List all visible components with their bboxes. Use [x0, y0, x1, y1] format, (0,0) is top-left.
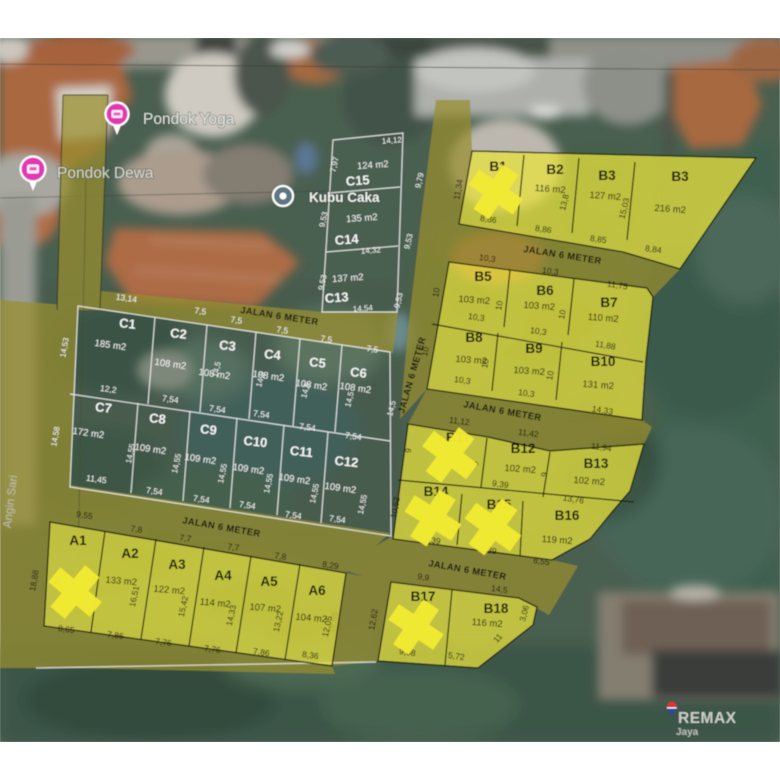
svg-text:B7: B7: [600, 295, 617, 310]
svg-text:C8: C8: [148, 410, 166, 427]
svg-text:C4: C4: [263, 346, 282, 363]
svg-text:7,5: 7,5: [194, 305, 207, 317]
svg-text:B9: B9: [525, 341, 542, 356]
svg-text:REMAX: REMAX: [678, 710, 737, 727]
svg-text:A3: A3: [168, 557, 186, 572]
svg-text:7,8: 7,8: [274, 550, 288, 562]
svg-text:C2: C2: [169, 325, 187, 342]
svg-text:B18: B18: [484, 601, 509, 616]
svg-text:102 m2: 102 m2: [504, 463, 536, 476]
svg-text:Pondok Yoga: Pondok Yoga: [143, 111, 235, 128]
svg-text:B5: B5: [474, 269, 492, 284]
svg-text:103 m2: 103 m2: [458, 294, 490, 307]
svg-text:10: 10: [419, 346, 431, 357]
svg-text:14,32: 14,32: [361, 245, 382, 255]
svg-text:131 m2: 131 m2: [582, 379, 614, 392]
svg-text:A1: A1: [69, 533, 87, 548]
svg-text:C1: C1: [118, 315, 136, 332]
svg-text:127 m2: 127 m2: [589, 190, 621, 203]
svg-text:C9: C9: [199, 421, 217, 438]
svg-text:B16: B16: [555, 508, 580, 523]
svg-text:C10: C10: [243, 433, 268, 450]
svg-text:102 m2: 102 m2: [573, 475, 605, 488]
svg-text:10: 10: [493, 300, 505, 311]
svg-text:C12: C12: [334, 453, 359, 470]
svg-text:C11: C11: [289, 443, 314, 460]
svg-text:B3: B3: [671, 169, 689, 184]
svg-text:B8: B8: [465, 330, 483, 345]
svg-text:10: 10: [544, 370, 556, 381]
svg-text:103 m2: 103 m2: [523, 300, 555, 313]
svg-text:B3: B3: [598, 168, 616, 183]
svg-text:A5: A5: [260, 574, 278, 589]
svg-text:B2: B2: [546, 162, 563, 177]
svg-text:C7: C7: [94, 399, 112, 416]
svg-text:B6: B6: [536, 283, 554, 298]
svg-text:C15: C15: [345, 172, 370, 189]
svg-text:124 m2: 124 m2: [357, 159, 389, 172]
svg-text:7,5: 7,5: [276, 324, 289, 336]
svg-text:10: 10: [430, 287, 442, 298]
svg-text:10: 10: [556, 309, 568, 320]
svg-text:7,5: 7,5: [230, 314, 243, 326]
svg-text:A6: A6: [308, 583, 326, 598]
svg-text:103 m2: 103 m2: [513, 365, 545, 378]
svg-text:119 m2: 119 m2: [541, 534, 573, 547]
svg-text:B12: B12: [511, 441, 536, 456]
svg-text:216 m2: 216 m2: [654, 203, 686, 216]
svg-text:7,5: 7,5: [366, 343, 379, 355]
svg-text:116 m2: 116 m2: [471, 617, 503, 630]
svg-text:C14: C14: [334, 231, 360, 248]
svg-text:A4: A4: [214, 568, 232, 583]
svg-text:9,9: 9,9: [417, 571, 430, 583]
svg-text:C13: C13: [324, 289, 349, 306]
svg-text:110 m2: 110 m2: [587, 312, 619, 325]
svg-text:C3: C3: [218, 337, 236, 354]
svg-text:135 m2: 135 m2: [346, 212, 378, 225]
svg-text:137 m2: 137 m2: [332, 272, 364, 285]
svg-text:14,54: 14,54: [353, 303, 374, 313]
svg-text:10: 10: [479, 358, 491, 369]
svg-text:Kubu Caka: Kubu Caka: [309, 190, 380, 205]
svg-text:7,5: 7,5: [320, 333, 333, 345]
svg-text:Jaya: Jaya: [676, 727, 699, 738]
svg-text:B13: B13: [584, 456, 609, 471]
svg-text:A2: A2: [121, 546, 138, 561]
svg-text:C6: C6: [349, 364, 367, 381]
svg-text:7,8: 7,8: [130, 523, 144, 535]
svg-text:Pondok Dewa: Pondok Dewa: [57, 165, 154, 182]
svg-text:7,7: 7,7: [227, 541, 241, 553]
svg-text:B10: B10: [591, 354, 616, 369]
svg-text:7,7: 7,7: [179, 532, 193, 544]
svg-text:C5: C5: [308, 354, 326, 371]
svg-text:14,12: 14,12: [382, 135, 403, 145]
